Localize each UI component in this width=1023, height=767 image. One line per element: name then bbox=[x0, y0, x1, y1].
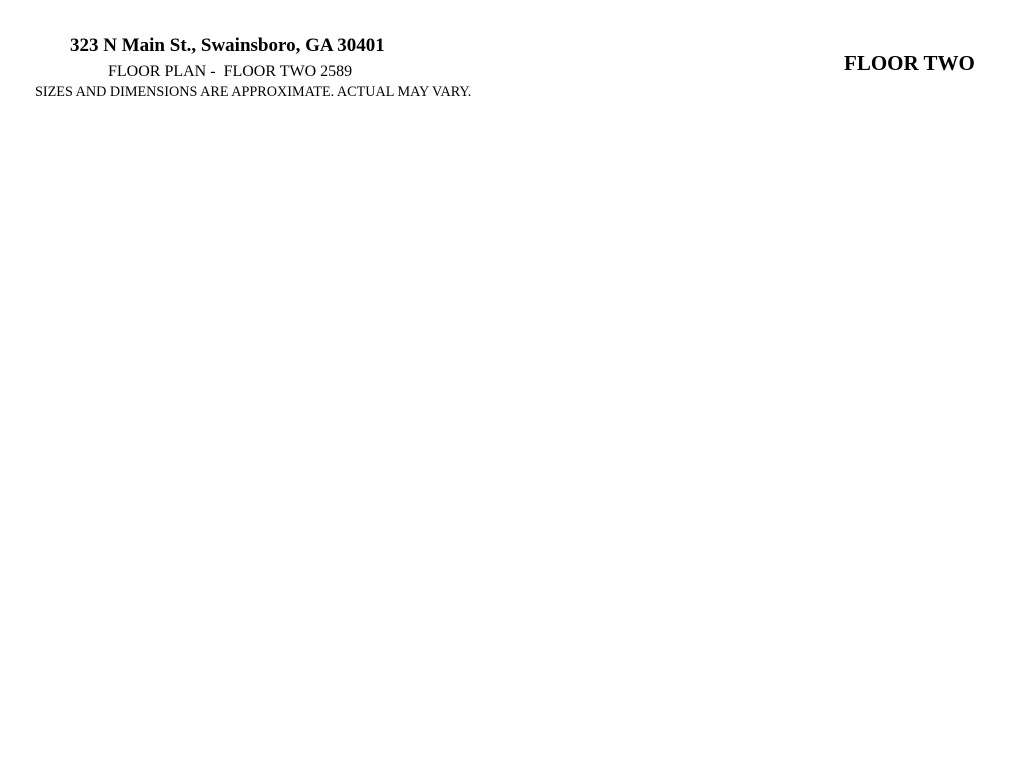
svg-text:FLOOR PLAN - FLOOR TWO 2589: FLOOR PLAN - FLOOR TWO 2589 bbox=[108, 63, 352, 80]
svg-text:FLOOR TWO: FLOOR TWO bbox=[844, 51, 975, 75]
svg-text:323 N Main St., Swainsboro, GA: 323 N Main St., Swainsboro, GA 30401 bbox=[70, 35, 385, 56]
svg-text:SIZES AND DIMENSIONS ARE APPRO: SIZES AND DIMENSIONS ARE APPROXIMATE. AC… bbox=[35, 84, 471, 100]
